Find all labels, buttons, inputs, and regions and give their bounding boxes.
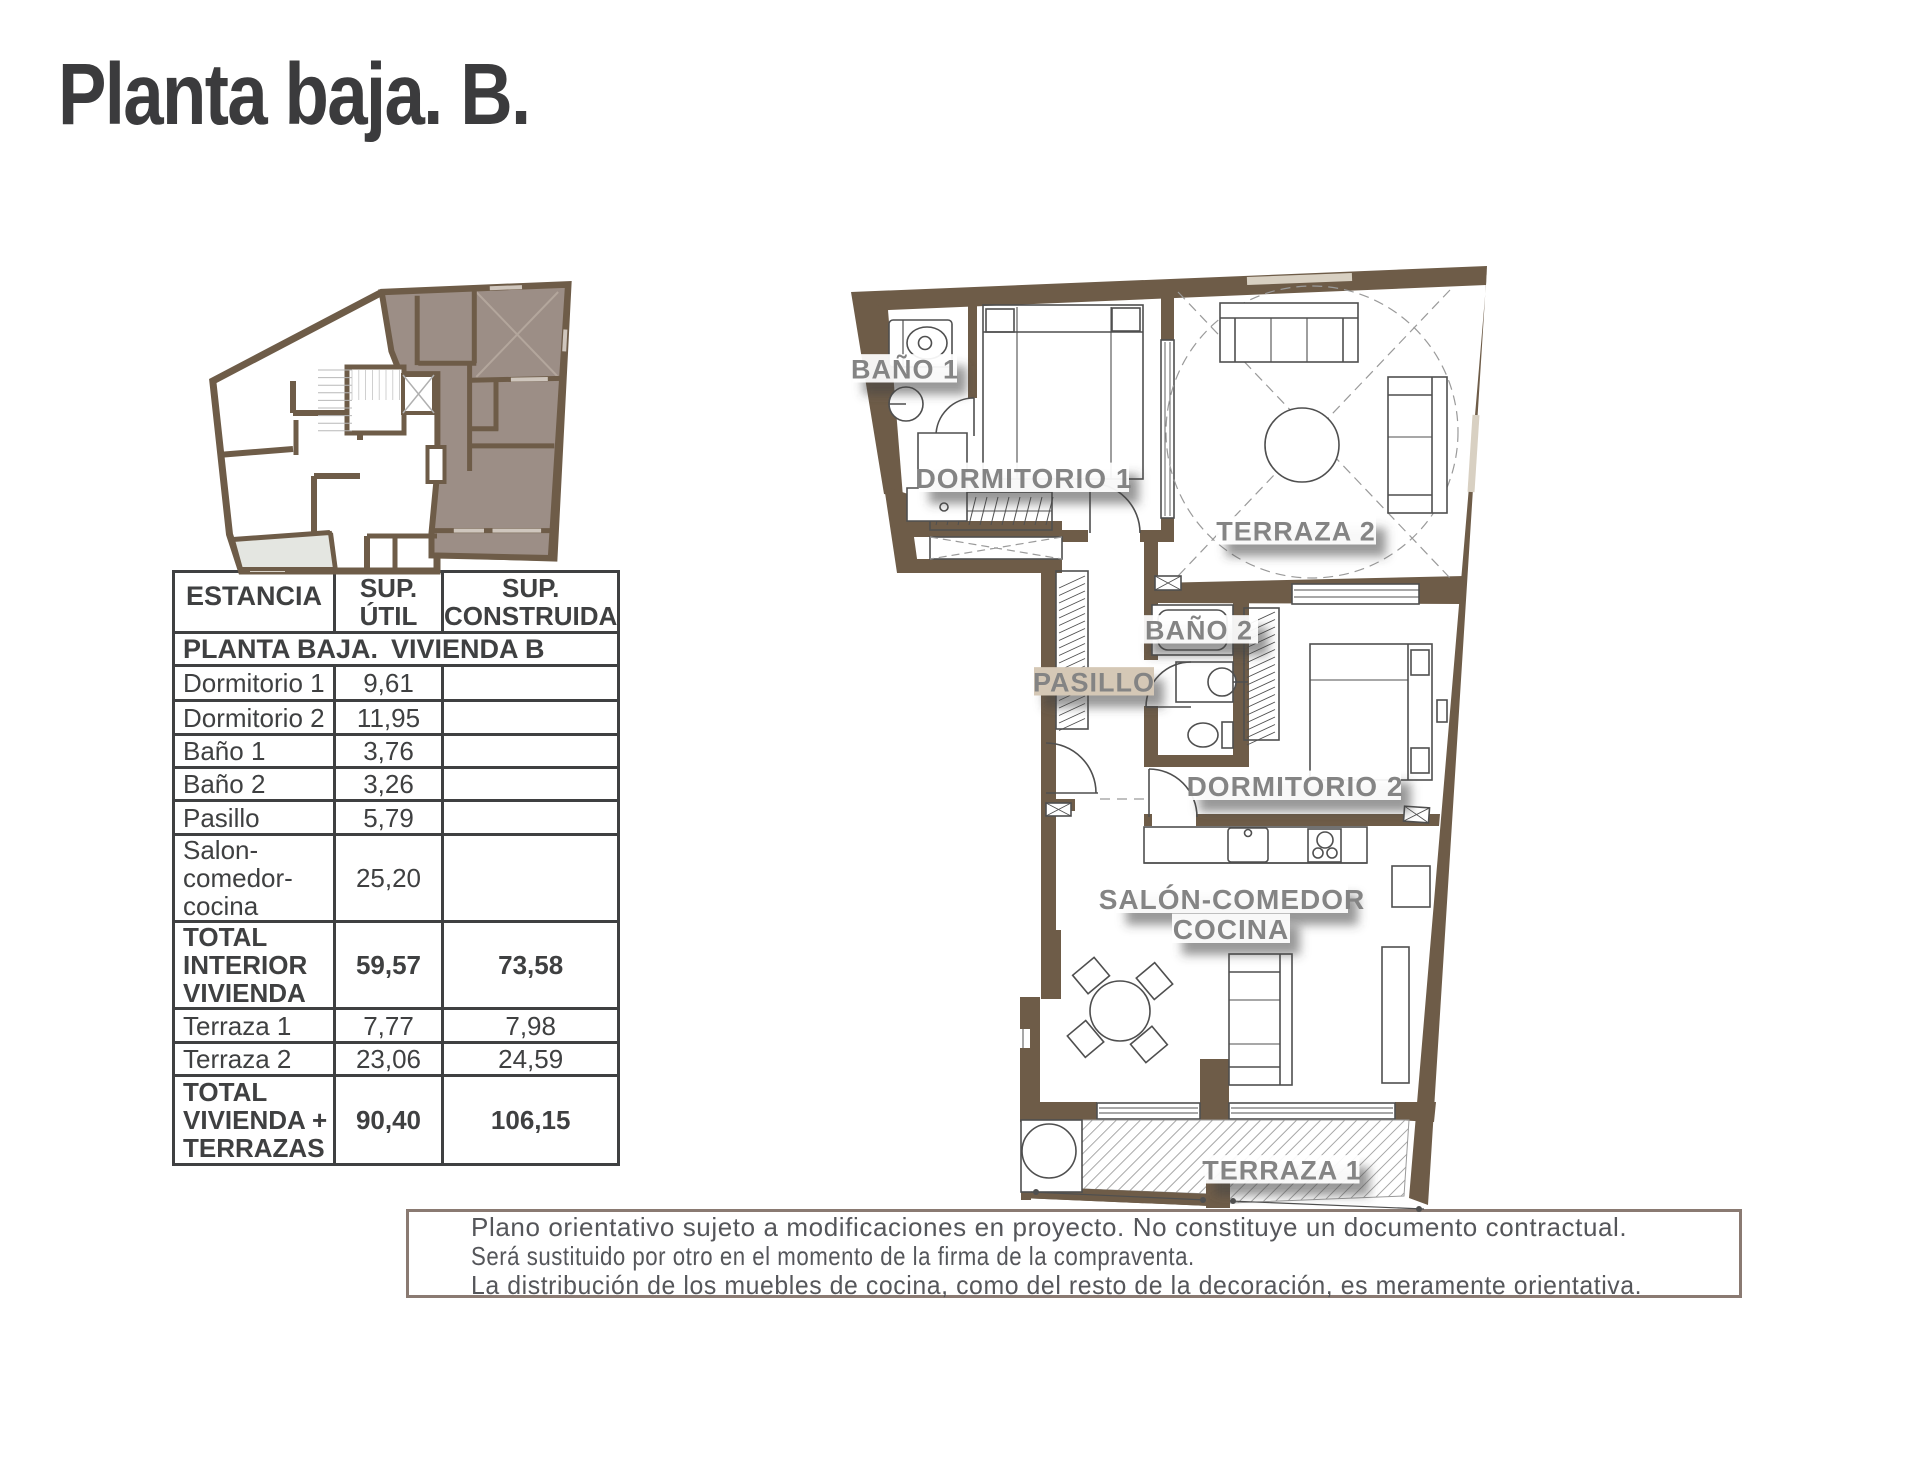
svg-text:BAÑO 2: BAÑO 2	[1145, 615, 1253, 646]
svg-text:TERRAZA 2: TERRAZA 2	[1216, 517, 1376, 547]
svg-text:COCINA: COCINA	[1173, 914, 1289, 945]
svg-text:DORMITORIO 2: DORMITORIO 2	[1187, 771, 1404, 802]
svg-text:TERRAZA 1: TERRAZA 1	[1202, 1156, 1362, 1186]
svg-text:BAÑO 1: BAÑO 1	[851, 354, 959, 385]
svg-text:SALÓN-COMEDOR: SALÓN-COMEDOR	[1099, 884, 1366, 915]
svg-text:DORMITORIO 1: DORMITORIO 1	[916, 463, 1133, 494]
svg-text:PASILLO: PASILLO	[1033, 668, 1155, 698]
